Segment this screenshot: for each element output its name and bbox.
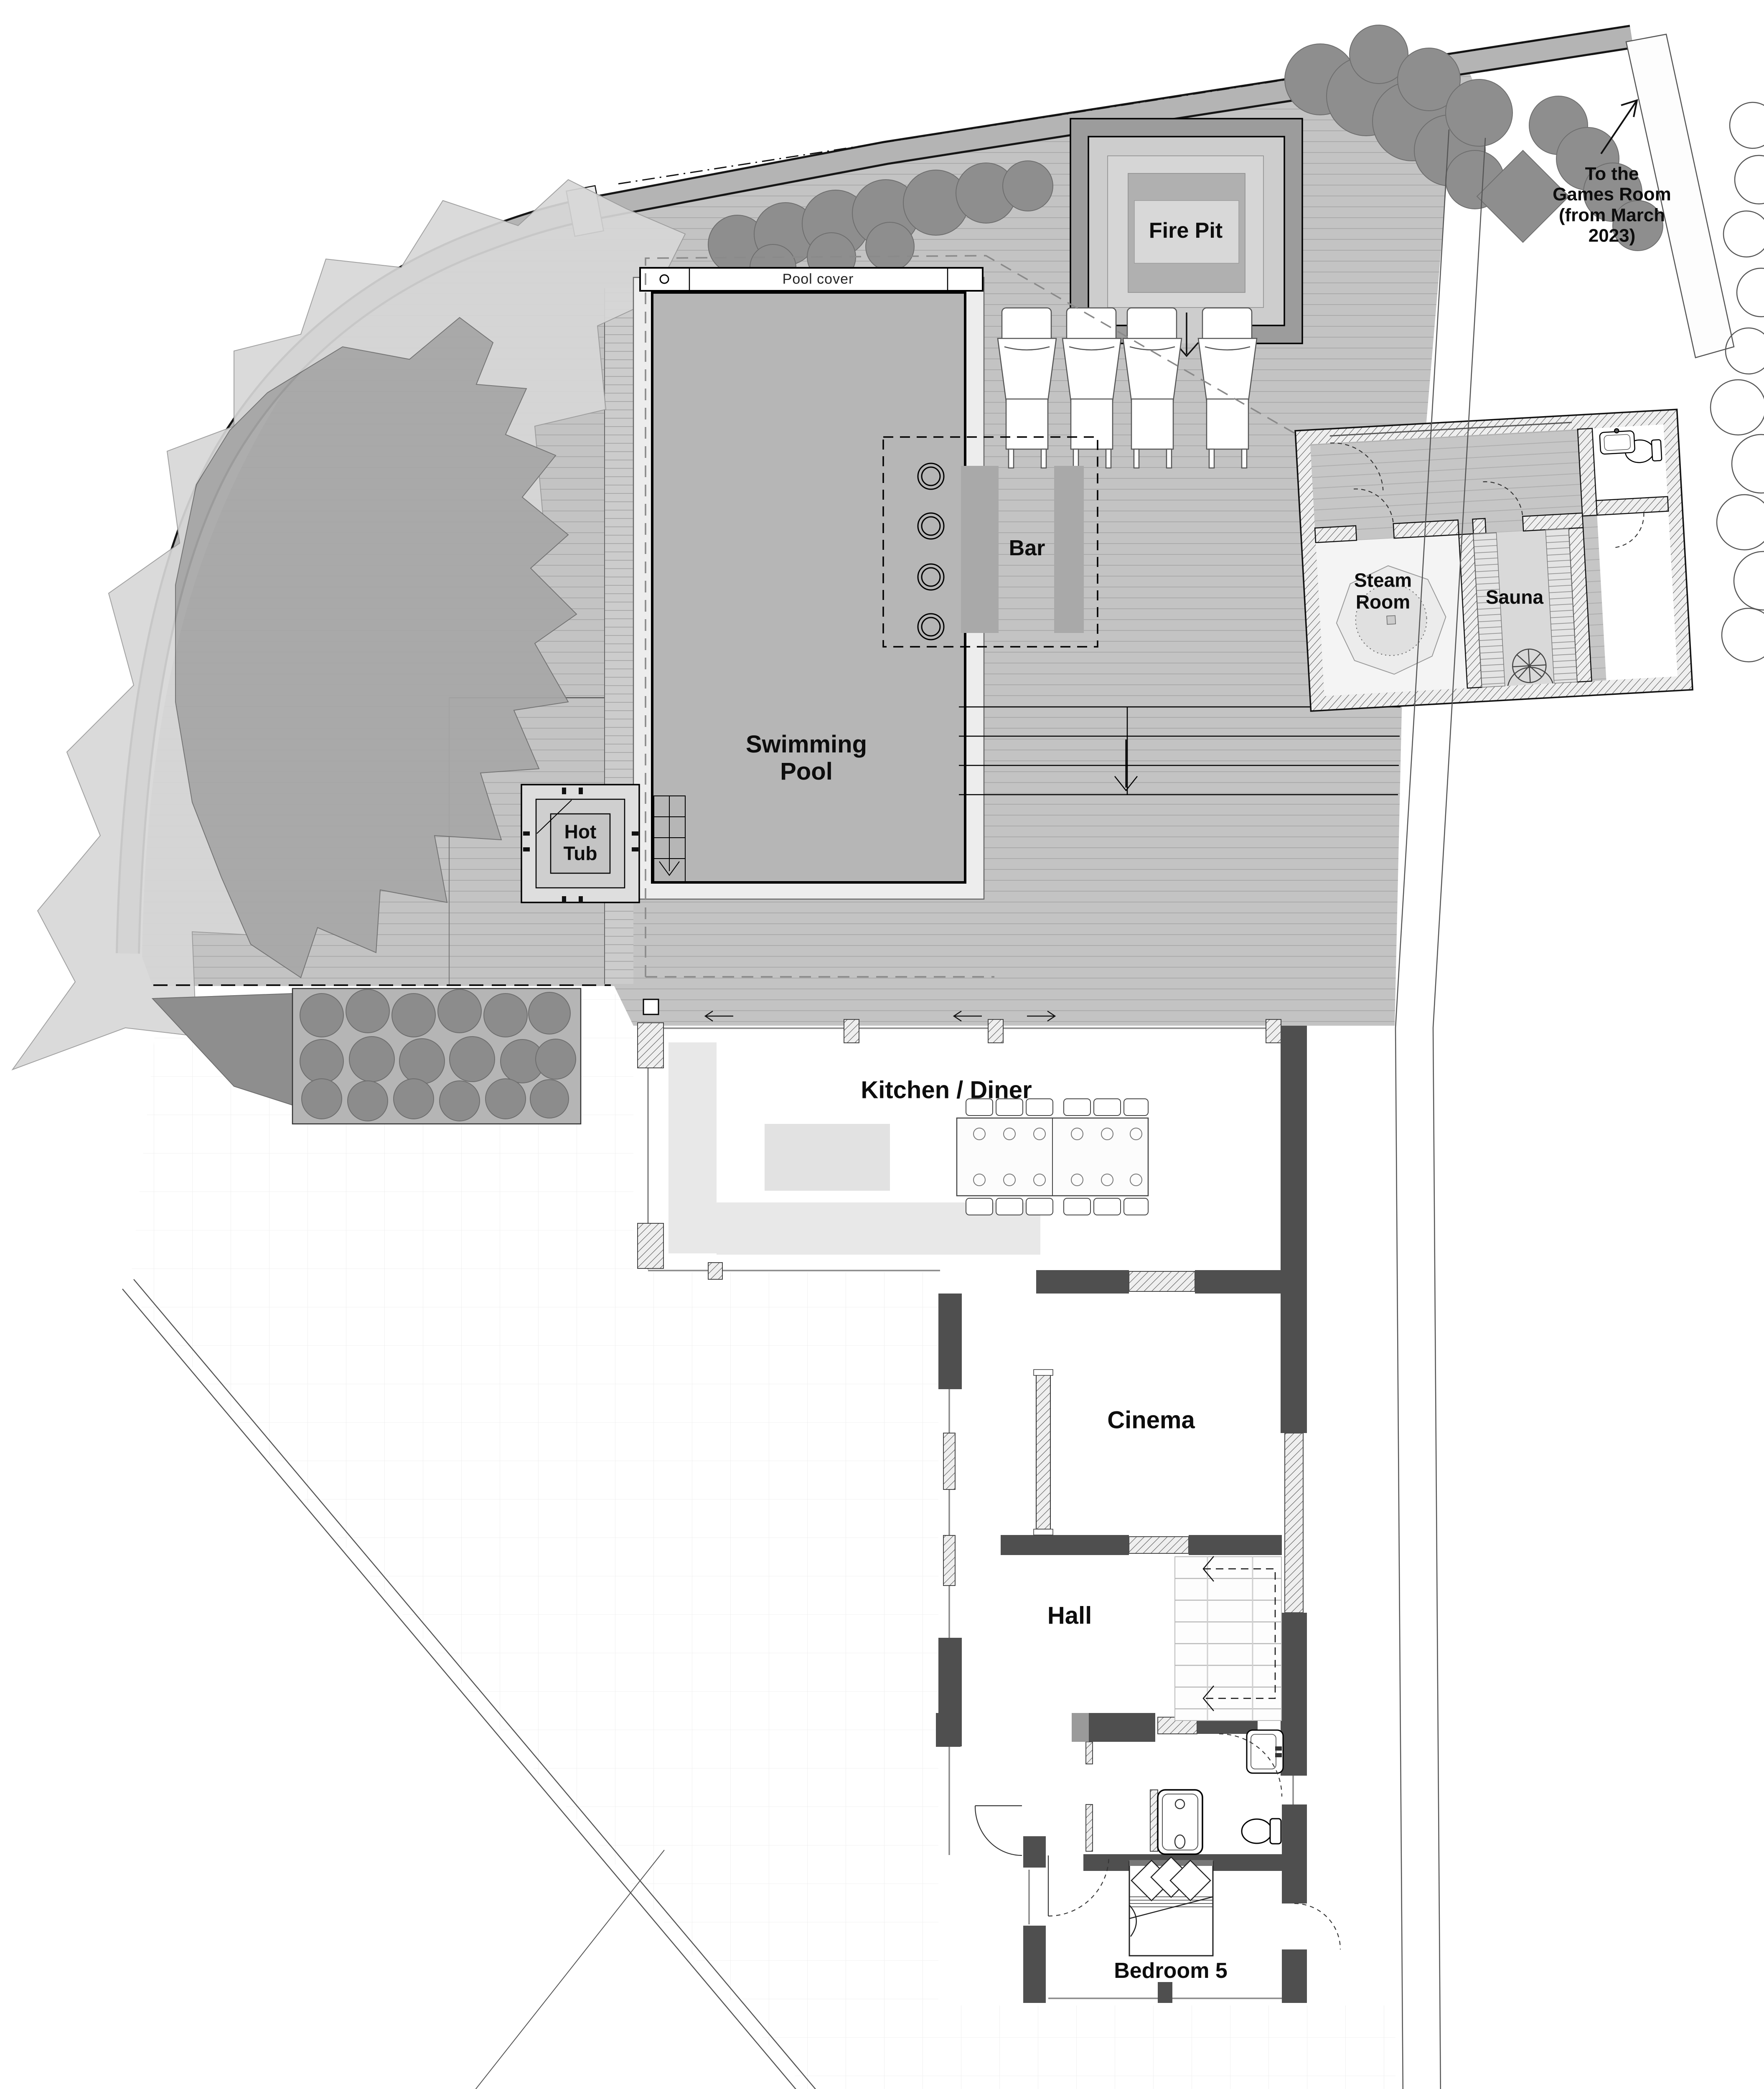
sun-lounger xyxy=(998,308,1056,468)
label-hot-tub: Hot Tub xyxy=(564,821,597,864)
games-room-arrow xyxy=(1601,100,1637,154)
label-hall: Hall xyxy=(1047,1603,1092,1630)
sideboard xyxy=(1072,1713,1155,1742)
label-swimming-pool: Swimming Pool xyxy=(746,731,867,785)
label-kitchen-diner: Kitchen / Diner xyxy=(861,1077,1032,1104)
changing-room-floor xyxy=(1597,511,1678,680)
label-bar: Bar xyxy=(1009,536,1045,560)
sun-lounger xyxy=(1062,308,1121,468)
bath xyxy=(1158,1790,1202,1854)
kitchen-island xyxy=(765,1124,890,1191)
label-sauna: Sauna xyxy=(1486,587,1543,608)
label-fire-pit: Fire Pit xyxy=(1149,219,1223,243)
label-steam-room: Steam Room xyxy=(1354,569,1412,612)
planter xyxy=(292,989,581,1124)
label-bedroom-5: Bedroom 5 xyxy=(1114,1959,1228,1983)
label-games-room-note: To the Games Room (from March 2023) xyxy=(1536,163,1688,246)
bed xyxy=(1129,1857,1213,1956)
hedge-arcs xyxy=(1711,102,1764,662)
stairs xyxy=(1175,1556,1281,1721)
steam-sauna-building xyxy=(1295,409,1693,711)
swimming-pool xyxy=(633,268,984,899)
kitchen-counter xyxy=(668,1042,717,1253)
bar-counter xyxy=(961,466,999,633)
label-cinema: Cinema xyxy=(1107,1407,1195,1434)
pool-steps xyxy=(654,796,685,882)
site-plan-graphics xyxy=(0,0,1764,2089)
sun-lounger xyxy=(1123,308,1182,468)
ensuite-toilet xyxy=(1242,1819,1281,1844)
site-plan: Fire Pit Pool cover Bar Steam Room Sauna… xyxy=(0,0,1764,2089)
ensuite-sink xyxy=(1247,1730,1283,1773)
bar-counter xyxy=(1054,466,1084,633)
sun-lounger xyxy=(1198,308,1257,468)
deck-post xyxy=(643,999,658,1014)
cinema-screen xyxy=(1034,1370,1053,1535)
label-pool-cover: Pool cover xyxy=(783,271,854,287)
